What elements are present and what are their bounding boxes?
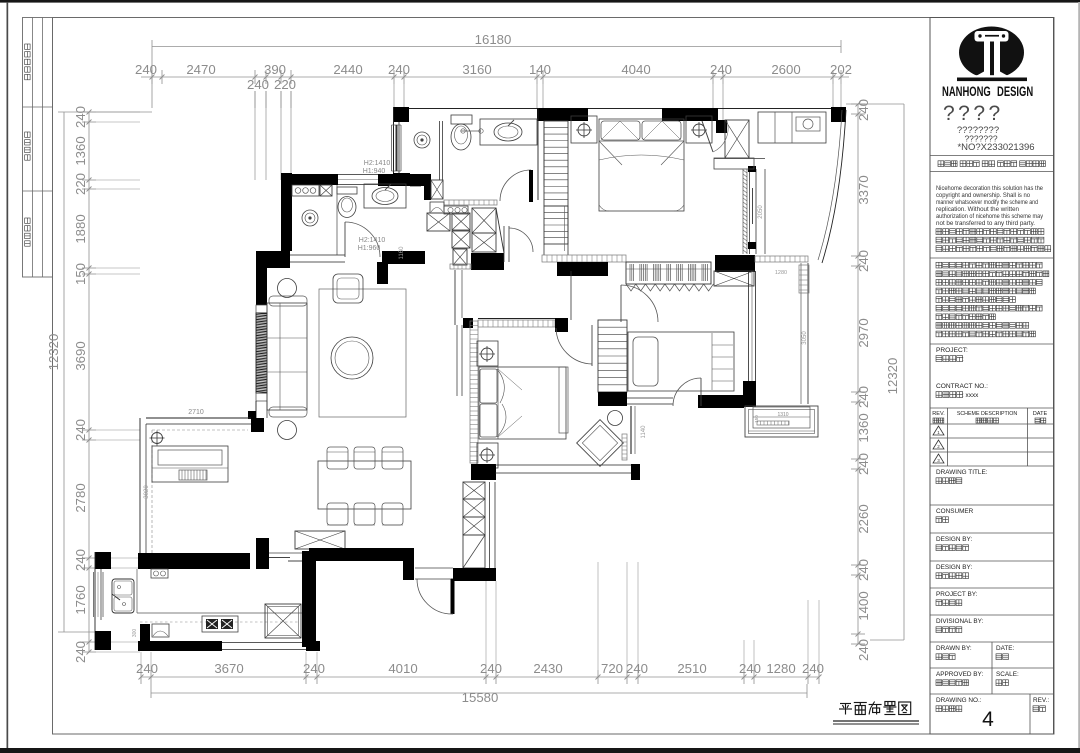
svg-text:2600: 2600 xyxy=(771,62,800,77)
svg-text:replication. Without the writt: replication. Without the written xyxy=(936,206,1020,213)
svg-text:DRAWN BY:: DRAWN BY: xyxy=(936,645,972,652)
svg-text:140: 140 xyxy=(529,62,551,77)
svg-text:240: 240 xyxy=(856,386,871,408)
svg-text:????: ???? xyxy=(943,102,1004,125)
svg-text:3020: 3020 xyxy=(144,485,150,499)
svg-text:CONTRACT NO.:: CONTRACT NO.: xyxy=(936,383,988,390)
svg-text:240: 240 xyxy=(856,99,871,121)
svg-text:NANHONG: NANHONG xyxy=(942,84,991,99)
svg-text:2440: 2440 xyxy=(333,62,362,77)
svg-text:240: 240 xyxy=(73,641,88,663)
svg-text:2710: 2710 xyxy=(188,409,204,416)
svg-text:220: 220 xyxy=(73,173,88,195)
svg-text:DIVISIONAL BY:: DIVISIONAL BY: xyxy=(936,618,984,625)
svg-text:Nicehome decoration this solut: Nicehome decoration this solution has th… xyxy=(936,185,1044,192)
svg-text:DATE: DATE xyxy=(1033,411,1048,417)
svg-text:3160: 3160 xyxy=(462,62,491,77)
svg-text:720: 720 xyxy=(601,661,623,676)
svg-text:150: 150 xyxy=(73,263,88,285)
svg-text:240: 240 xyxy=(73,549,88,571)
svg-text:240: 240 xyxy=(739,661,761,676)
svg-text::: : xyxy=(962,356,964,363)
svg-text:240: 240 xyxy=(73,106,88,128)
svg-text:1280: 1280 xyxy=(766,661,795,676)
svg-text:240: 240 xyxy=(247,77,269,92)
svg-text:12320: 12320 xyxy=(46,334,61,371)
svg-text:3050: 3050 xyxy=(802,331,808,345)
svg-text:APPROVED BY:: APPROVED BY: xyxy=(936,671,983,678)
svg-text:DRAWING TITLE:: DRAWING TITLE: xyxy=(936,469,988,476)
svg-text:DESIGN: DESIGN xyxy=(997,84,1033,99)
svg-text:1360: 1360 xyxy=(856,413,871,442)
svg-text:240: 240 xyxy=(856,639,871,661)
svg-text:240: 240 xyxy=(135,62,157,77)
svg-text:1360: 1360 xyxy=(73,136,88,165)
svg-text:: xxxx: : xxxx xyxy=(962,392,979,399)
svg-text:2510: 2510 xyxy=(677,661,706,676)
svg-text:DATE:: DATE: xyxy=(996,645,1015,652)
svg-text:1760: 1760 xyxy=(73,585,88,614)
svg-text:390: 390 xyxy=(264,62,286,77)
svg-text:1140: 1140 xyxy=(641,425,647,439)
svg-text:240: 240 xyxy=(136,661,158,676)
svg-text:3670: 3670 xyxy=(214,661,243,676)
svg-text:not be transferred to any thir: not be transferred to any third party. xyxy=(936,220,1035,227)
svg-text:240: 240 xyxy=(856,250,871,272)
svg-text:15580: 15580 xyxy=(462,690,499,705)
svg-text:2780: 2780 xyxy=(73,483,88,512)
svg-text:DESIGN BY:: DESIGN BY: xyxy=(936,564,972,571)
svg-text:12320: 12320 xyxy=(885,358,900,395)
svg-text:SCALE:: SCALE: xyxy=(996,671,1019,678)
svg-text:4040: 4040 xyxy=(621,62,650,77)
svg-text:CONSUMER: CONSUMER xyxy=(936,508,974,515)
svg-text:240: 240 xyxy=(626,661,648,676)
svg-text:3690: 3690 xyxy=(73,341,88,370)
svg-text:H2:1410: H2:1410 xyxy=(364,160,391,167)
svg-text:2050: 2050 xyxy=(758,205,764,219)
svg-text:DESIGN BY:: DESIGN BY: xyxy=(936,536,972,543)
svg-text:4: 4 xyxy=(982,708,994,731)
svg-text:*NO?X233021396: *NO?X233021396 xyxy=(957,142,1034,153)
svg-text:2970: 2970 xyxy=(856,318,871,347)
svg-text:240: 240 xyxy=(802,661,824,676)
svg-text:1160: 1160 xyxy=(399,246,405,260)
svg-text:3370: 3370 xyxy=(856,175,871,204)
svg-text:H2:1410: H2:1410 xyxy=(359,237,386,244)
svg-text:16180: 16180 xyxy=(475,32,512,47)
svg-text:copyright and ownership. Shall: copyright and ownership. Shall is no xyxy=(936,192,1031,199)
svg-text:240: 240 xyxy=(480,661,502,676)
svg-text:240: 240 xyxy=(856,453,871,475)
svg-text:SCHEME DESCRIPTION: SCHEME DESCRIPTION xyxy=(957,411,1018,417)
svg-text:2430: 2430 xyxy=(533,661,562,676)
svg-text:PROJECT:: PROJECT: xyxy=(936,347,968,354)
svg-text:240: 240 xyxy=(388,62,410,77)
svg-text:240: 240 xyxy=(73,419,88,441)
svg-text:240: 240 xyxy=(856,559,871,581)
svg-text:2260: 2260 xyxy=(856,504,871,533)
svg-text:DRAWING NO.:: DRAWING NO.: xyxy=(936,697,982,704)
svg-text:manner whatsoever modify the s: manner whatsoever modify the scheme and xyxy=(936,199,1038,206)
svg-text:1400: 1400 xyxy=(856,591,871,620)
svg-text:220: 220 xyxy=(274,77,296,92)
svg-text:PROJECT BY:: PROJECT BY: xyxy=(936,591,978,598)
svg-text:300: 300 xyxy=(132,629,138,638)
svg-text:1280: 1280 xyxy=(775,270,787,276)
svg-text:240: 240 xyxy=(710,62,732,77)
svg-text:1880: 1880 xyxy=(73,214,88,243)
svg-text:2470: 2470 xyxy=(186,62,215,77)
svg-text:H1:960: H1:960 xyxy=(358,245,381,252)
svg-text:H1:940: H1:940 xyxy=(363,168,386,175)
svg-text:4010: 4010 xyxy=(388,661,417,676)
svg-text:240: 240 xyxy=(303,661,325,676)
svg-text:1310: 1310 xyxy=(777,412,788,418)
svg-text:REV.:: REV.: xyxy=(1033,697,1049,704)
svg-text:150: 150 xyxy=(754,415,759,423)
svg-text:202: 202 xyxy=(830,62,852,77)
svg-text:authorization of nicehome this: authorization of nicehome this scheme ma… xyxy=(936,213,1044,220)
svg-text:REV.: REV. xyxy=(932,411,945,417)
